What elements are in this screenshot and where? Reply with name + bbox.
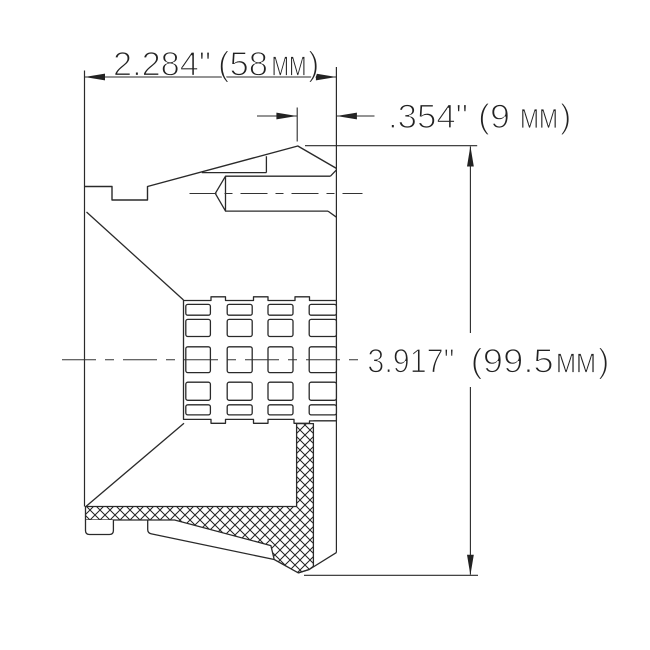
svg-text:MM: MM — [556, 348, 596, 379]
svg-text:): ) — [598, 343, 609, 381]
svg-text:): ) — [308, 46, 319, 84]
svg-text:(9: (9 — [478, 98, 510, 136]
svg-text:MM: MM — [520, 103, 558, 134]
svg-text:): ) — [560, 98, 571, 136]
svg-text:(99.5: (99.5 — [471, 343, 554, 381]
svg-text:MM: MM — [272, 51, 307, 82]
svg-text:(58: (58 — [218, 46, 268, 84]
svg-text:3.917": 3.917" — [367, 343, 454, 381]
svg-text:.354": .354" — [388, 98, 468, 136]
svg-text:2.284": 2.284" — [113, 46, 211, 84]
